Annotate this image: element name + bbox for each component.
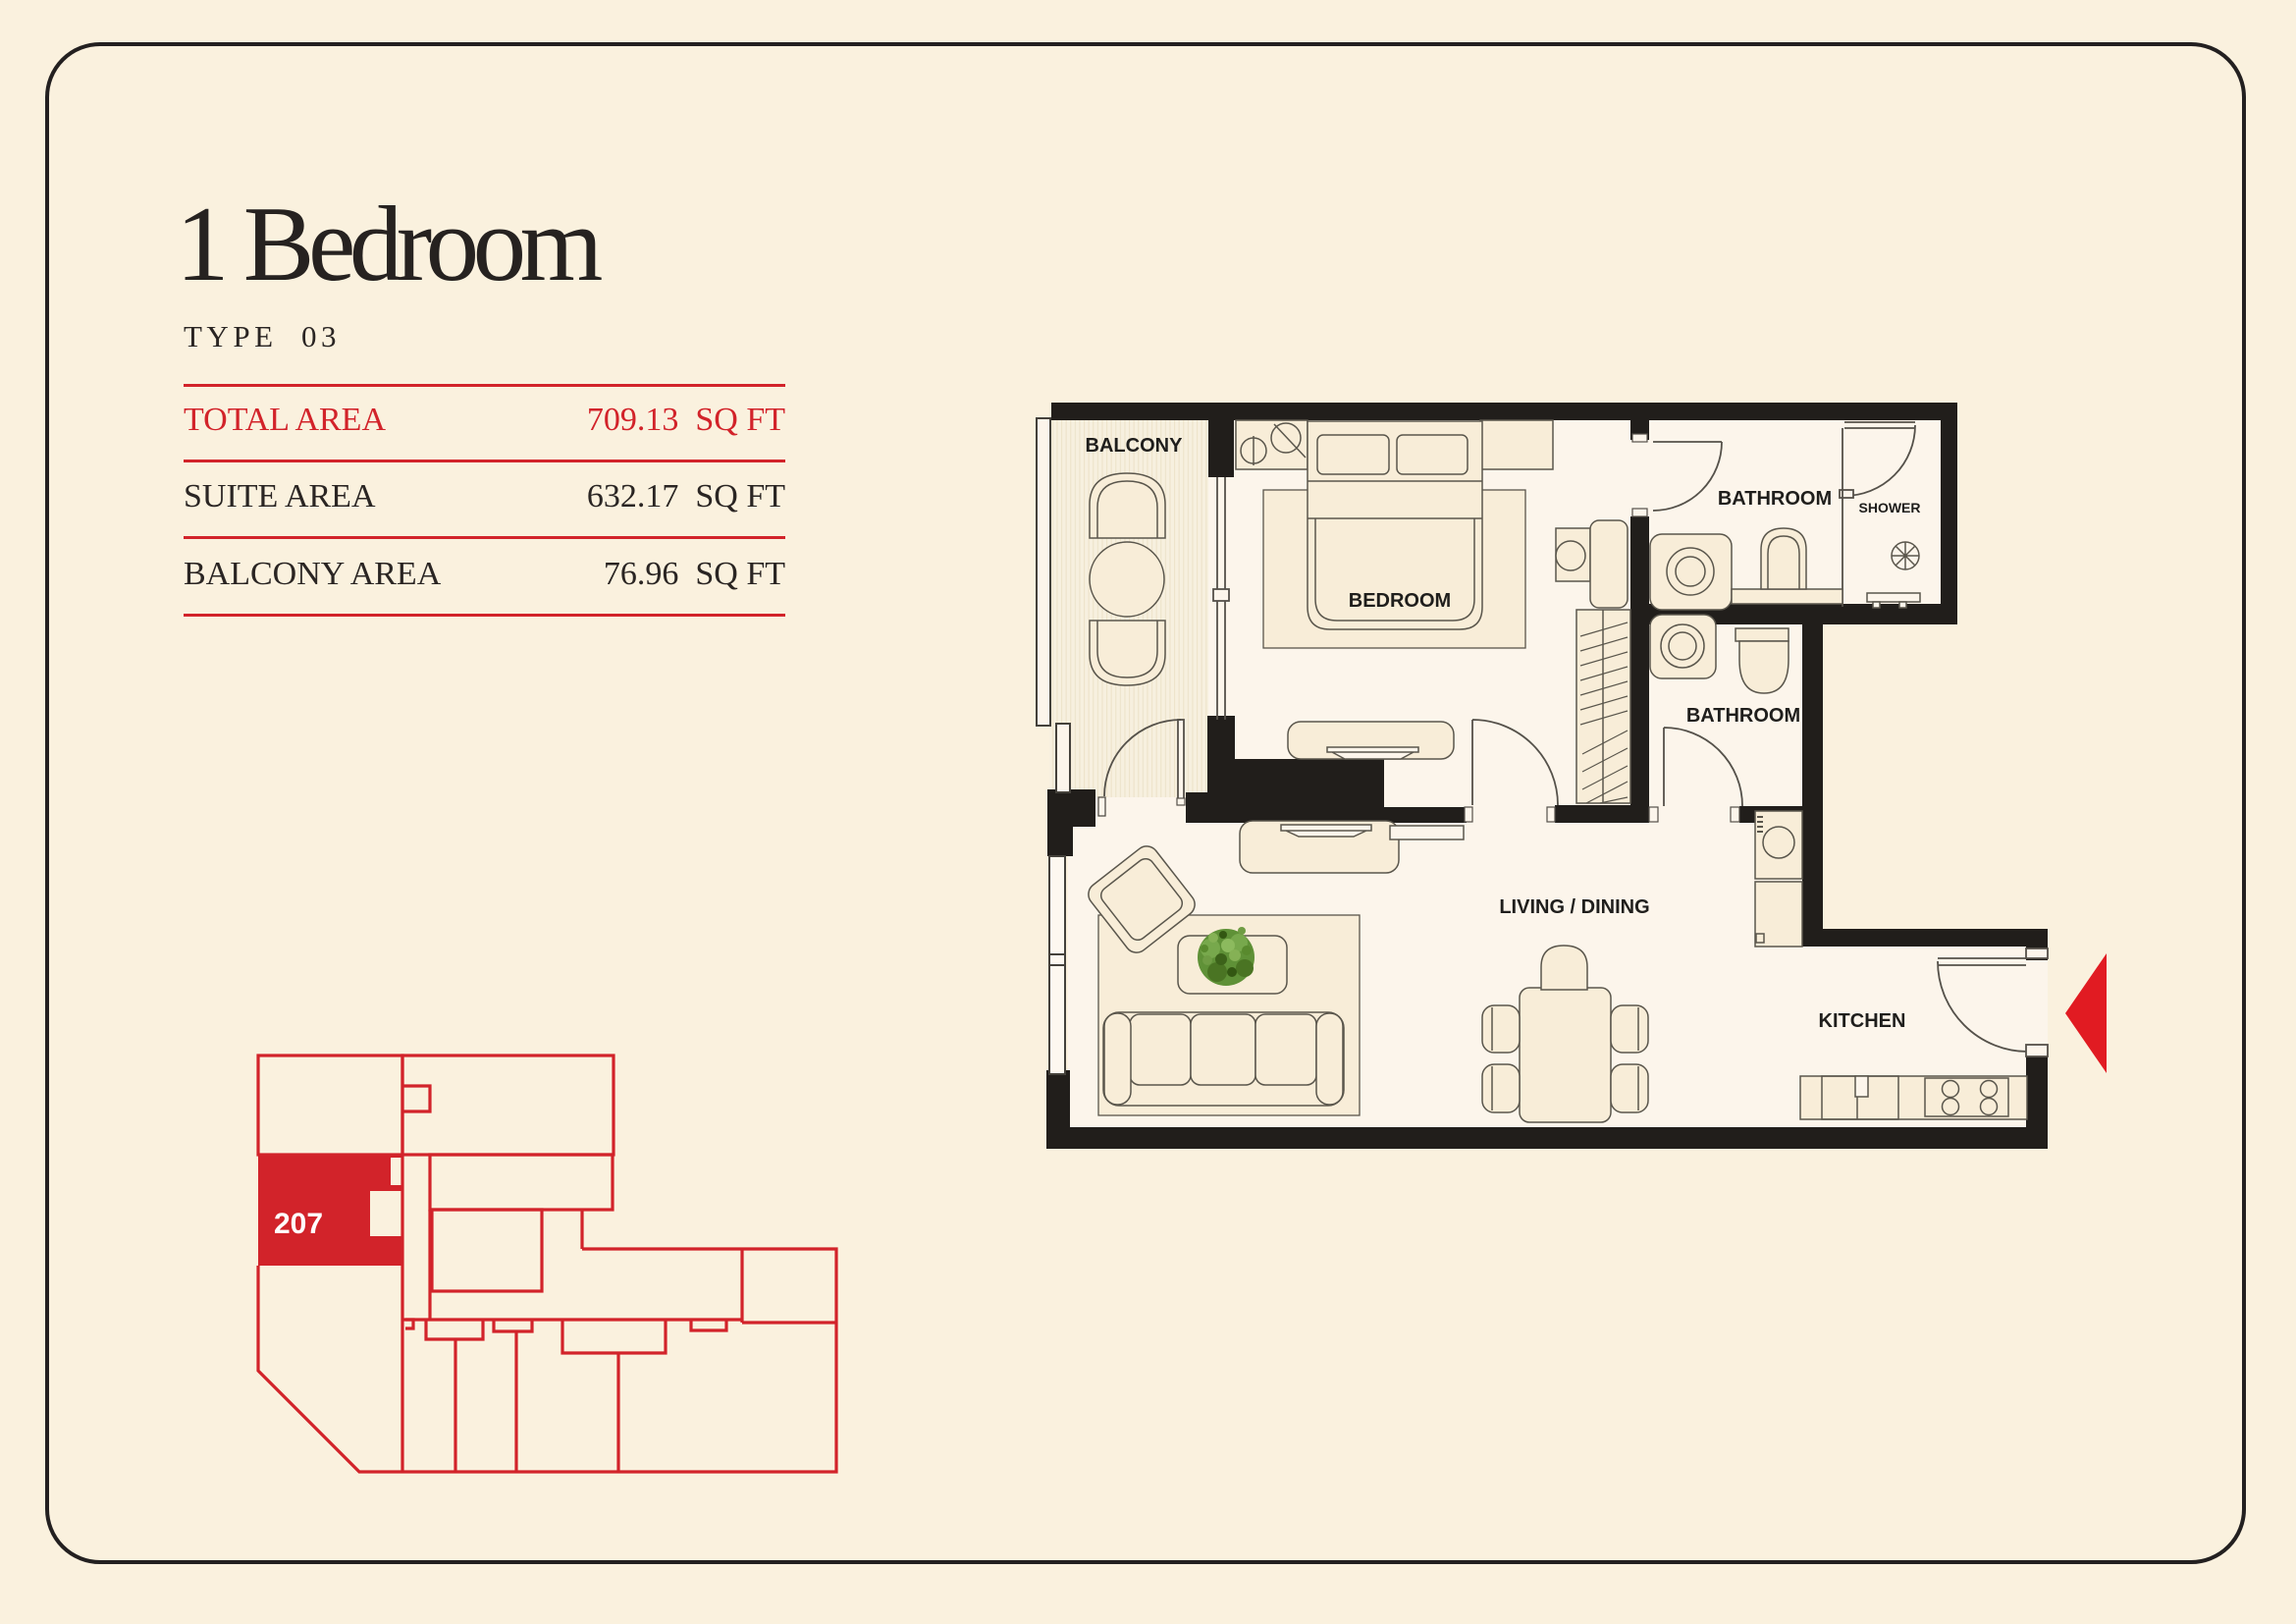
svg-text:BATHROOM: BATHROOM: [1686, 705, 1800, 727]
svg-text:BALCONY: BALCONY: [1086, 435, 1184, 457]
svg-text:207: 207: [274, 1208, 323, 1240]
svg-text:LIVING / DINING: LIVING / DINING: [1499, 896, 1649, 918]
svg-text:BEDROOM: BEDROOM: [1349, 590, 1451, 612]
svg-text:SHOWER: SHOWER: [1859, 500, 1921, 515]
svg-text:BATHROOM: BATHROOM: [1718, 488, 1832, 510]
svg-text:KITCHEN: KITCHEN: [1819, 1010, 1906, 1032]
